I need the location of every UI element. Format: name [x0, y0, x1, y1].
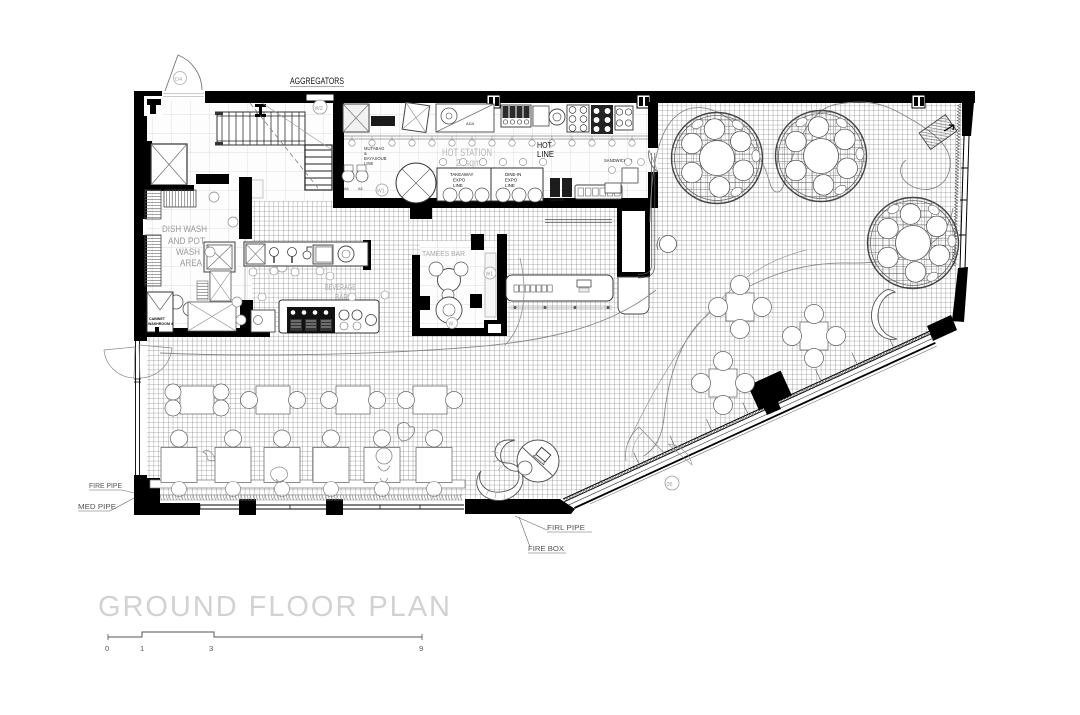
- svg-text:FIRL PIPE: FIRL PIPE: [547, 525, 585, 532]
- svg-text:FIRE BOX: FIRE BOX: [528, 546, 564, 553]
- svg-text:LINE: LINE: [453, 183, 463, 188]
- svg-text:D4: D4: [175, 77, 182, 83]
- svg-text:MED PIPE: MED PIPE: [78, 504, 116, 511]
- svg-text:BEVERAGE: BEVERAGE: [325, 283, 356, 292]
- svg-text:LINE: LINE: [505, 183, 515, 188]
- svg-text:EXPO: EXPO: [453, 178, 466, 183]
- svg-text:EXPO: EXPO: [505, 178, 518, 183]
- svg-text:WASH: WASH: [176, 247, 200, 257]
- svg-text:DISH WASH: DISH WASH: [162, 224, 207, 234]
- svg-text:9: 9: [419, 644, 423, 653]
- svg-text:FIRE PIPE: FIRE PIPE: [89, 483, 122, 490]
- svg-text:A5: A5: [358, 187, 363, 191]
- svg-text:W1: W1: [377, 189, 385, 195]
- svg-text:TAMEES BAR: TAMEES BAR: [422, 249, 466, 258]
- svg-text:CABINET: CABINET: [149, 317, 166, 321]
- svg-text:3: 3: [209, 644, 213, 653]
- svg-text:TAKEAWAY: TAKEAWAY: [450, 172, 473, 177]
- svg-text:DINE-IN: DINE-IN: [505, 172, 521, 177]
- svg-text:GROUND FLOOR PLAN: GROUND FLOOR PLAN: [98, 591, 456, 623]
- svg-text:AGGREGATORS: AGGREGATORS: [290, 76, 344, 87]
- svg-text:W1: W1: [486, 272, 494, 278]
- svg-text:1: 1: [140, 644, 144, 653]
- svg-text:AREA: AREA: [180, 258, 202, 268]
- svg-text:0: 0: [105, 644, 109, 653]
- svg-text:W2: W2: [315, 106, 323, 112]
- svg-text:LINE: LINE: [537, 150, 554, 159]
- svg-text:05: 05: [667, 482, 673, 488]
- svg-text:TOASTER: TOASTER: [549, 198, 565, 202]
- svg-text:W: W: [449, 322, 454, 328]
- svg-text:HOT: HOT: [537, 141, 552, 150]
- svg-text:MUTABAG: MUTABAG: [364, 146, 384, 151]
- svg-text:AND POT: AND POT: [168, 236, 205, 246]
- svg-text:WASHROOM &: WASHROOM &: [148, 322, 174, 326]
- svg-text:ADA: ADA: [466, 121, 475, 126]
- svg-text:A6: A6: [344, 187, 349, 191]
